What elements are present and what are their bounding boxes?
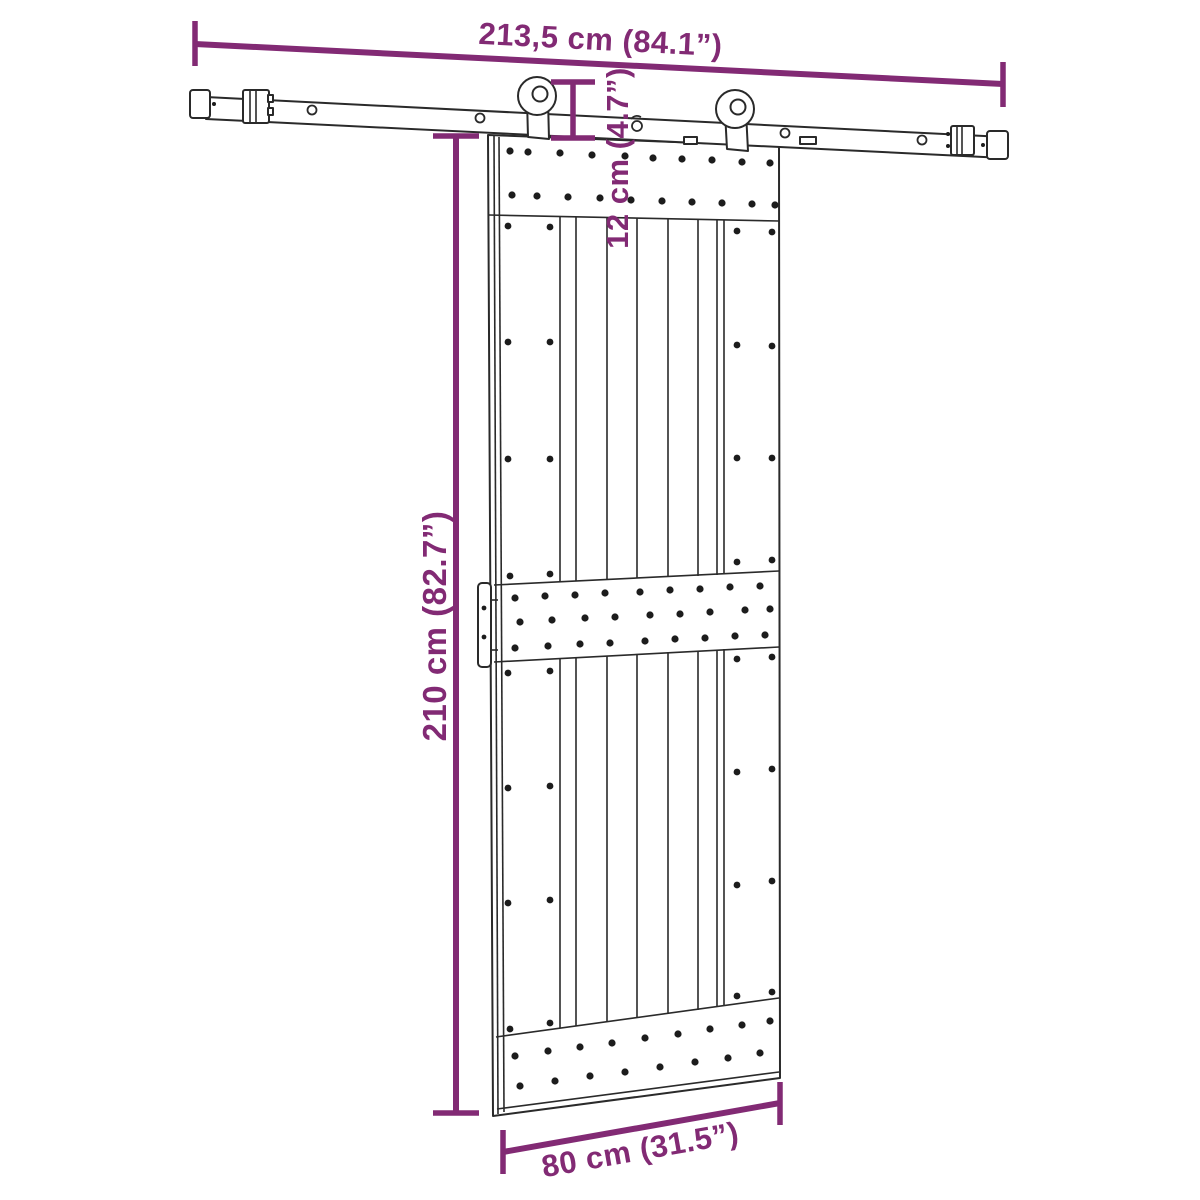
screw-dot bbox=[658, 197, 665, 204]
screw-dot bbox=[547, 897, 554, 904]
screw-dot bbox=[691, 1058, 698, 1065]
screw-dot bbox=[769, 878, 776, 885]
screw-dot bbox=[734, 342, 741, 349]
screw-dot bbox=[649, 154, 656, 161]
screw-dot bbox=[708, 156, 715, 163]
screw-dot bbox=[544, 1047, 551, 1054]
screw-dot bbox=[734, 993, 741, 1000]
screw-dot bbox=[601, 589, 608, 596]
screw-dot bbox=[646, 611, 653, 618]
screw-dot bbox=[547, 1020, 554, 1027]
screw-dot bbox=[741, 606, 748, 613]
screw-dot bbox=[769, 229, 776, 236]
screw-dot bbox=[769, 654, 776, 661]
screw-dot bbox=[547, 224, 554, 231]
rail-hole bbox=[918, 136, 927, 145]
screw-dot bbox=[769, 989, 776, 996]
rail-stop-tab bbox=[684, 137, 697, 144]
screw-dot bbox=[734, 455, 741, 462]
door-height-label: 210 cm (82.7”) bbox=[416, 511, 453, 742]
handle-bolt bbox=[482, 606, 487, 611]
dimension-diagram: 213,5 cm (84.1”) 12 cm (4.7”) 210 cm (82… bbox=[0, 0, 1200, 1200]
rail-connector-left bbox=[243, 90, 273, 123]
rail-hole bbox=[476, 114, 485, 123]
track-length-label: 213,5 cm (84.1”) bbox=[478, 16, 724, 63]
rail-hole bbox=[781, 129, 790, 138]
screw-dot bbox=[726, 583, 733, 590]
rail-hole bbox=[308, 106, 317, 115]
screw-dot bbox=[505, 670, 512, 677]
handle-bolt bbox=[482, 635, 487, 640]
screw-dot bbox=[734, 882, 741, 889]
screw-dot bbox=[548, 616, 555, 623]
screw-dot bbox=[656, 1063, 663, 1070]
screw-dot bbox=[706, 608, 713, 615]
screw-dot bbox=[756, 1049, 763, 1056]
screw-dot bbox=[769, 557, 776, 564]
screw-dot bbox=[505, 785, 512, 792]
dimension-track-length: 213,5 cm (84.1”) bbox=[195, 16, 1003, 107]
screw-dot bbox=[756, 582, 763, 589]
door-outline bbox=[488, 135, 780, 1116]
screw-dot bbox=[766, 605, 773, 612]
screw-dot bbox=[769, 343, 776, 350]
screw-dot bbox=[734, 769, 741, 776]
handle-bar bbox=[478, 583, 491, 667]
rail-stop-tab bbox=[800, 137, 816, 144]
screw-dot bbox=[734, 559, 741, 566]
screw-dot bbox=[556, 149, 563, 156]
screw-dot bbox=[738, 158, 745, 165]
screw-dot bbox=[641, 1034, 648, 1041]
screw-dot bbox=[547, 668, 554, 675]
screw-dot bbox=[505, 456, 512, 463]
screw-dot bbox=[544, 642, 551, 649]
screw-dot bbox=[507, 573, 514, 580]
screw-dot bbox=[701, 634, 708, 641]
screw-dot bbox=[547, 339, 554, 346]
screw-dot bbox=[738, 1021, 745, 1028]
screw-dot bbox=[696, 585, 703, 592]
screw-dot bbox=[524, 148, 531, 155]
screw-dot bbox=[734, 228, 741, 235]
screw-dot bbox=[505, 223, 512, 230]
screw-dot bbox=[576, 1043, 583, 1050]
screw-dot bbox=[621, 1068, 628, 1075]
screw-dot bbox=[766, 159, 773, 166]
top-offset-label: 12 cm (4.7”) bbox=[600, 67, 635, 249]
screw-dot bbox=[766, 1017, 773, 1024]
roller-wheel-left bbox=[518, 77, 556, 115]
screw-dot bbox=[506, 147, 513, 154]
roller-wheel-right bbox=[716, 90, 754, 128]
screw-dot bbox=[547, 783, 554, 790]
door-panel bbox=[478, 135, 780, 1116]
screw-dot bbox=[724, 1054, 731, 1061]
screw-dot bbox=[674, 1030, 681, 1037]
screw-dot bbox=[551, 1077, 558, 1084]
screw-dot bbox=[508, 191, 515, 198]
screw-dot bbox=[505, 900, 512, 907]
screw-dot bbox=[706, 1025, 713, 1032]
screw-dot bbox=[761, 631, 768, 638]
screw-dot bbox=[505, 339, 512, 346]
screw-dot bbox=[769, 766, 776, 773]
screw-dot bbox=[588, 151, 595, 158]
rail-connector-right bbox=[946, 126, 974, 155]
screw-dot bbox=[641, 637, 648, 644]
screw-dot bbox=[748, 200, 755, 207]
screw-dot bbox=[671, 635, 678, 642]
screw-dot bbox=[541, 592, 548, 599]
screw-dot bbox=[608, 1039, 615, 1046]
screw-dot bbox=[734, 656, 741, 663]
screw-dot bbox=[718, 199, 725, 206]
screw-dot bbox=[547, 456, 554, 463]
dimension-door-height: 210 cm (82.7”) bbox=[416, 136, 479, 1114]
screw-dot bbox=[581, 614, 588, 621]
screw-dot bbox=[547, 571, 554, 578]
screw-dot bbox=[516, 618, 523, 625]
screw-dot bbox=[576, 640, 583, 647]
screw-dot bbox=[666, 586, 673, 593]
screw-dot bbox=[611, 613, 618, 620]
screw-dot bbox=[511, 644, 518, 651]
screw-dot bbox=[769, 455, 776, 462]
screw-dot bbox=[771, 201, 778, 208]
screw-dot bbox=[511, 594, 518, 601]
screw-dot bbox=[564, 193, 571, 200]
screw-dot bbox=[606, 639, 613, 646]
screw-dot bbox=[688, 198, 695, 205]
screw-dot bbox=[571, 591, 578, 598]
screw-dot bbox=[511, 1052, 518, 1059]
screw-dot bbox=[676, 610, 683, 617]
screw-dot bbox=[586, 1072, 593, 1079]
screw-dot bbox=[678, 155, 685, 162]
screw-dot bbox=[533, 192, 540, 199]
screw-dot bbox=[516, 1082, 523, 1089]
screw-dot bbox=[636, 588, 643, 595]
screw-dot bbox=[507, 1026, 514, 1033]
screw-dot bbox=[731, 632, 738, 639]
